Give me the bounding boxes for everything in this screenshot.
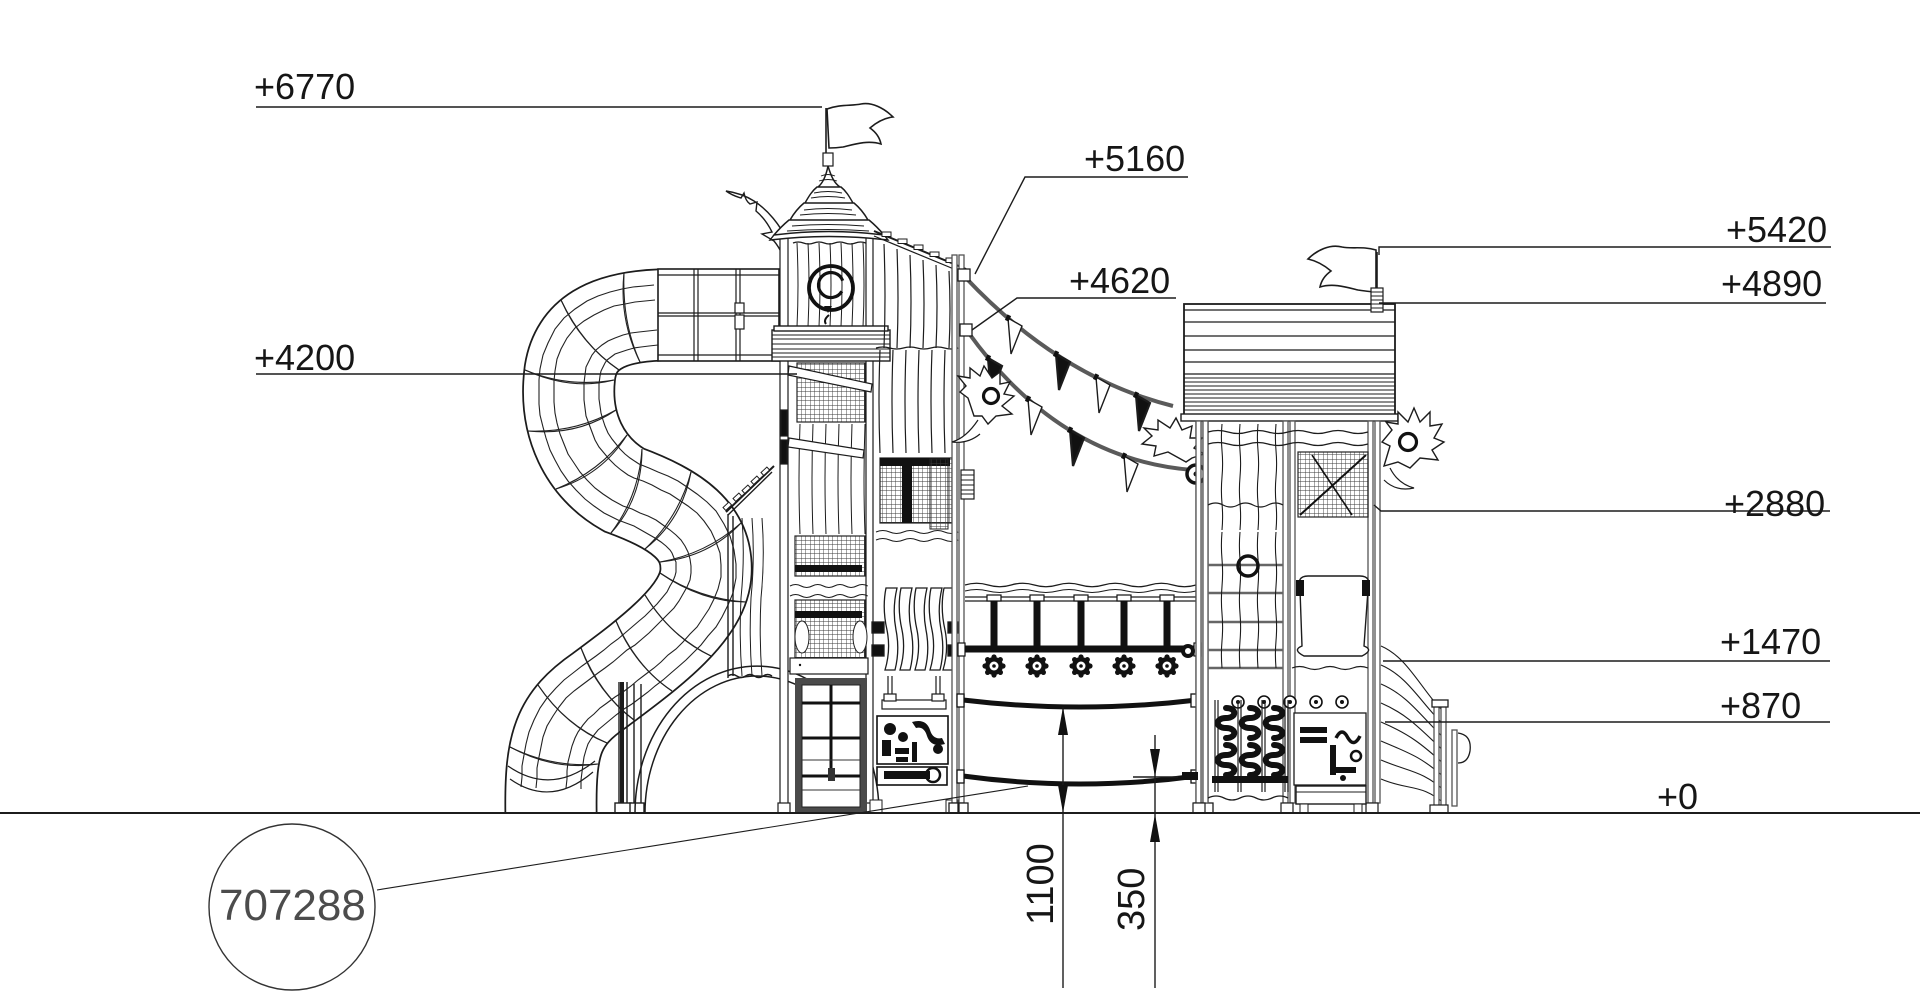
svg-text:+0: +0 xyxy=(1657,776,1698,817)
svg-text:+4620: +4620 xyxy=(1069,260,1170,301)
svg-text:350: 350 xyxy=(1111,868,1153,931)
svg-text:+4200: +4200 xyxy=(254,337,355,378)
svg-text:+2880: +2880 xyxy=(1724,483,1825,524)
svg-text:+5160: +5160 xyxy=(1084,138,1185,179)
svg-text:+1470: +1470 xyxy=(1720,621,1821,662)
svg-text:1100: 1100 xyxy=(1020,843,1062,925)
svg-text:+870: +870 xyxy=(1720,685,1801,726)
svg-text:707288: 707288 xyxy=(219,881,366,930)
svg-text:+6770: +6770 xyxy=(254,66,355,107)
svg-text:+4890: +4890 xyxy=(1721,263,1822,304)
svg-text:+5420: +5420 xyxy=(1726,209,1827,250)
